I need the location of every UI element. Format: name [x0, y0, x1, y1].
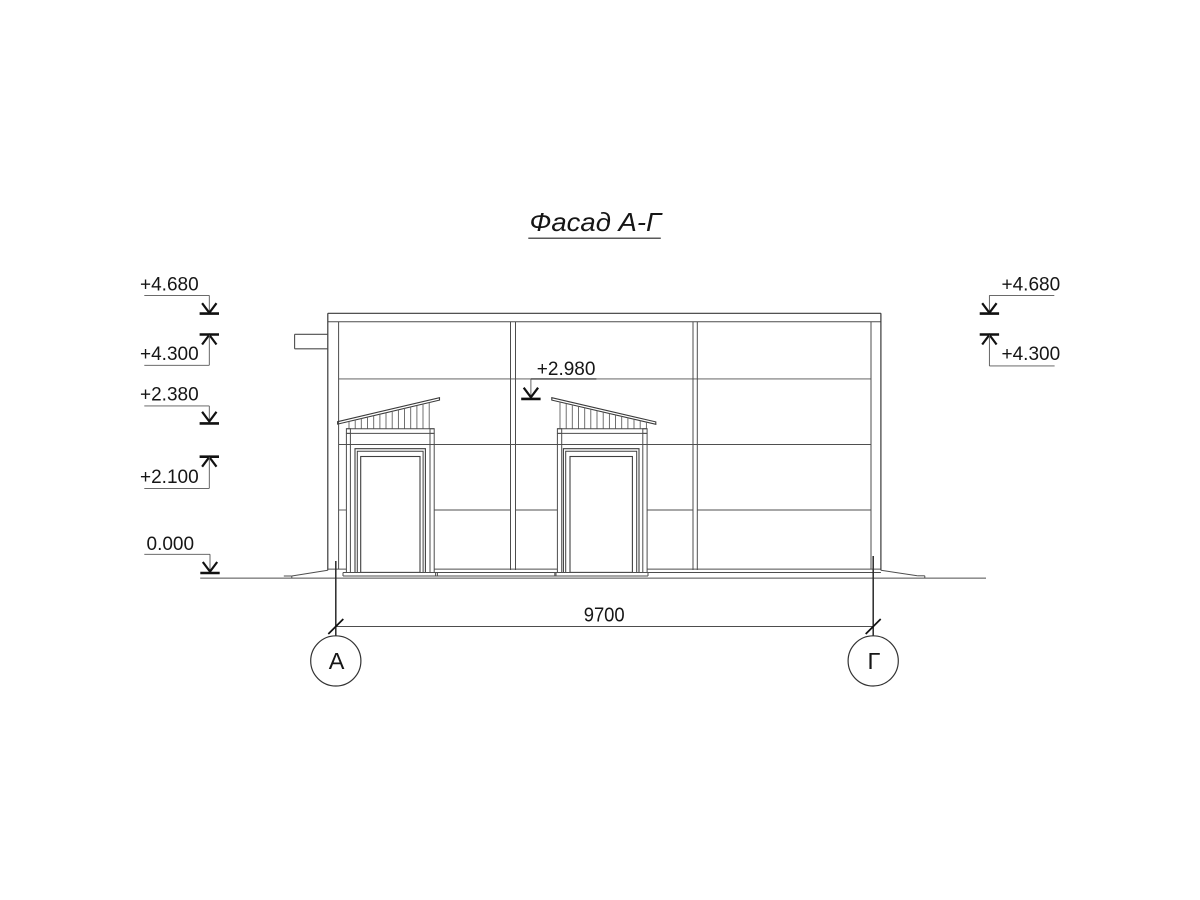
svg-text:Фасад А-Г: Фасад А-Г [530, 207, 663, 237]
svg-text:А: А [329, 648, 345, 674]
svg-text:+2.100: +2.100 [140, 467, 199, 488]
svg-text:Г: Г [868, 648, 881, 674]
svg-text:+4.680: +4.680 [1002, 274, 1061, 295]
svg-text:+4.300: +4.300 [1002, 344, 1061, 365]
svg-text:+4.680: +4.680 [140, 274, 199, 295]
svg-text:+2.980: +2.980 [537, 359, 596, 380]
svg-text:+4.300: +4.300 [140, 344, 199, 365]
svg-text:0.000: 0.000 [147, 534, 195, 555]
svg-text:9700: 9700 [584, 603, 625, 626]
svg-text:+2.380: +2.380 [140, 385, 199, 406]
